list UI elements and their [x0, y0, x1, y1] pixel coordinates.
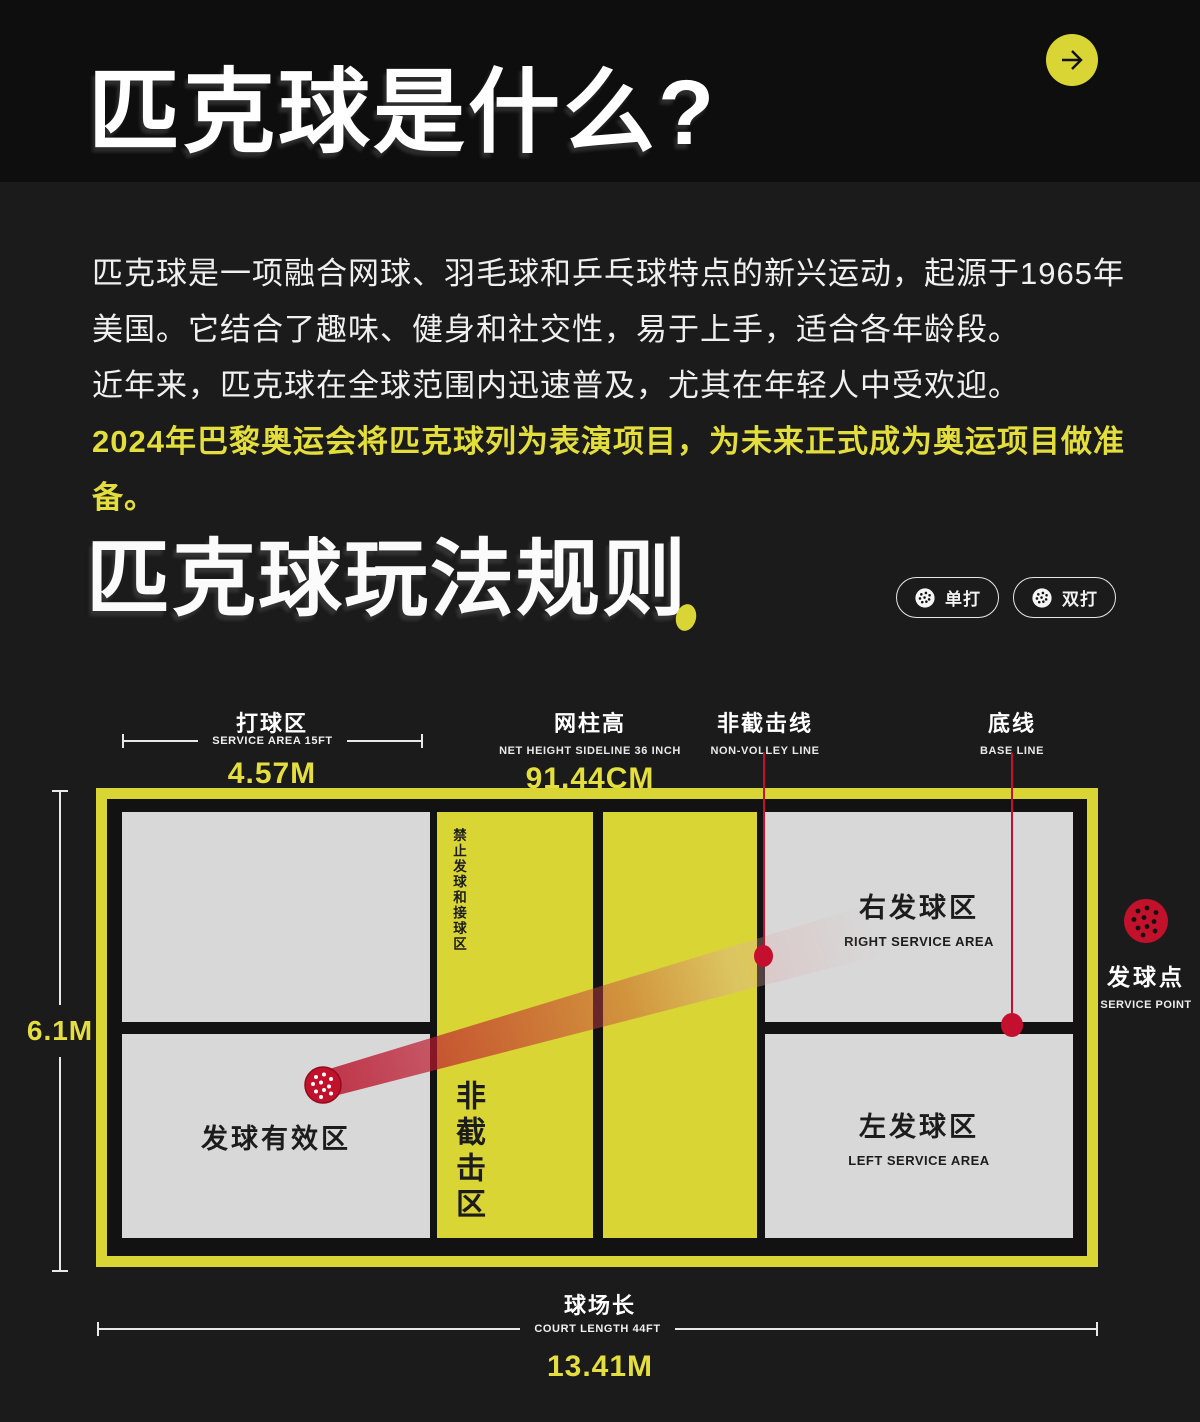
service-area-metric: 4.57M: [132, 757, 412, 791]
intro-line-3: 近年来，匹克球在全球范围内迅速普及，尤其在年轻人中受欢迎。: [92, 358, 1132, 414]
non-volley-line-en: NON-VOLLEY LINE: [675, 745, 855, 757]
page-title: 匹克球是什么?: [88, 38, 717, 171]
service-point-cn: 发球点: [1096, 958, 1196, 992]
singles-label: 单打: [945, 585, 981, 610]
doubles-button[interactable]: 双打: [1013, 577, 1116, 618]
court-length-cn: 球场长: [0, 1288, 1200, 1320]
right-service-cn: 右发球区: [859, 886, 979, 925]
pickleball-icon: [1031, 587, 1053, 609]
rules-title: 匹克球玩法规则: [86, 512, 688, 633]
court-length-ruler: COURT LENGTH 44FT: [97, 1322, 1098, 1336]
non-volley-line-cn: 非截击线: [675, 706, 855, 738]
infographic-page: 匹克球是什么? 匹克球是一项融合网球、羽毛球和乒乓球特点的新兴运动，起源于196…: [0, 0, 1200, 1422]
pickleball-icon: [914, 587, 936, 609]
label-base-line: 底线 BASE LINE: [932, 706, 1092, 757]
right-service-label: 右发球区 RIGHT SERVICE AREA: [765, 812, 1073, 1022]
serve-ball-icon: [304, 1066, 342, 1104]
doubles-label: 双打: [1062, 585, 1098, 610]
base-line-dot: [1001, 1013, 1023, 1037]
intro-highlight: 2024年巴黎奥运会将匹克球列为表演项目，为未来正式成为奥运项目做准备。: [92, 414, 1132, 526]
arrow-button[interactable]: [1046, 34, 1098, 86]
service-area-en: SERVICE AREA 15FT: [198, 735, 346, 747]
non-volley-line-dot: [754, 945, 773, 967]
mode-pills: 单打 双打: [896, 577, 1116, 618]
court-length-metric: 13.41M: [0, 1350, 1200, 1384]
singles-button[interactable]: 单打: [896, 577, 999, 618]
label-service-area-metric: 4.57M: [132, 752, 412, 791]
label-non-volley-line: 非截击线 NON-VOLLEY LINE: [675, 706, 855, 757]
left-service-label: 左发球区 LEFT SERVICE AREA: [765, 1034, 1073, 1238]
non-volley-strip-right: [603, 812, 757, 1238]
service-point-ball-icon: [1123, 898, 1169, 944]
intro-line-1: 匹克球是一项融合网球、羽毛球和乒乓球特点的新兴运动，起源于1965年: [92, 246, 1132, 302]
base-line-cn: 底线: [932, 706, 1092, 738]
intro-line-2: 美国。它结合了趣味、健身和社交性，易于上手，适合各年龄段。: [92, 302, 1132, 358]
non-volley-line-pointer: [763, 753, 765, 955]
zone-top-left: [122, 812, 430, 1022]
intro-section: 匹克球是一项融合网球、羽毛球和乒乓球特点的新兴运动，起源于1965年 美国。它结…: [92, 246, 1132, 526]
zone-right-service: 右发球区 RIGHT SERVICE AREA: [765, 812, 1073, 1022]
non-volley-zone-label: 非截击区: [445, 1080, 489, 1224]
left-service-cn: 左发球区: [859, 1105, 979, 1144]
court-length-en: COURT LENGTH 44FT: [520, 1323, 674, 1335]
arrow-right-icon: [1058, 46, 1086, 74]
base-line-pointer: [1011, 753, 1013, 1025]
court-length-block: 球场长 13.41M: [0, 1288, 1200, 1320]
service-area-ruler: SERVICE AREA 15FT: [122, 734, 423, 748]
no-serve-zone-label: 禁止发球和接球区: [448, 828, 468, 952]
valid-serve-cn: 发球有效区: [201, 1117, 351, 1156]
zone-left-service: 左发球区 LEFT SERVICE AREA: [765, 1034, 1073, 1238]
court-width-ruler: 6.1M: [28, 790, 92, 1272]
service-point-en: SERVICE POINT: [1096, 999, 1196, 1011]
court-width-metric: 6.1M: [27, 1005, 93, 1057]
left-service-en: LEFT SERVICE AREA: [848, 1153, 989, 1168]
header: 匹克球是什么?: [0, 0, 1200, 182]
service-point-block: 发球点 SERVICE POINT: [1096, 898, 1196, 1011]
